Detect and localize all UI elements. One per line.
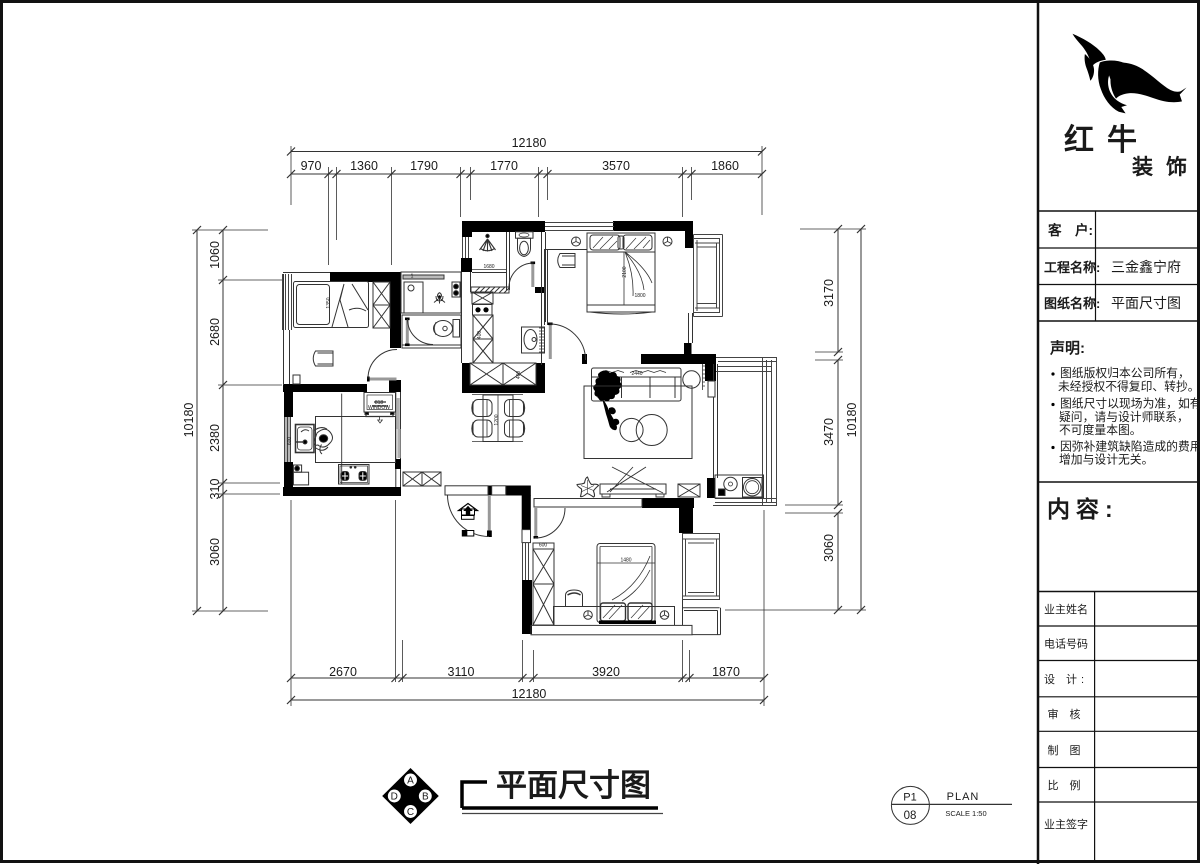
svg-text:600: 600 [287,437,293,446]
svg-text:D: D [391,792,398,803]
svg-text:600: 600 [539,543,548,549]
svg-text:310: 310 [208,479,222,500]
svg-text:1: 1 [411,274,414,280]
svg-text:比 例: 比 例 [1047,778,1084,792]
svg-text:SCALE 1:50: SCALE 1:50 [945,809,986,818]
svg-text:1870: 1870 [712,665,740,679]
svg-text:1480: 1480 [620,558,631,564]
svg-text:电话号码: 电话号码 [1044,638,1088,651]
svg-text:1860: 1860 [711,159,739,173]
svg-text:红牛: 红牛 [1064,124,1150,157]
svg-text:10180: 10180 [182,403,196,438]
svg-text:400: 400 [516,371,522,380]
svg-text:400: 400 [477,331,483,340]
svg-text:3110: 3110 [448,665,475,679]
svg-text:1060: 1060 [208,241,222,269]
svg-text:P1: P1 [903,792,916,804]
svg-text:PLAN: PLAN [947,791,980,803]
svg-text:3920: 3920 [592,665,620,679]
svg-text:3570: 3570 [602,159,630,173]
svg-text:10180: 10180 [845,403,859,438]
svg-text:平面尺寸图: 平面尺寸图 [496,768,651,803]
svg-text:图纸尺寸以现场为准，如有: 图纸尺寸以现场为准，如有 [1060,397,1200,411]
svg-text:工程名称:: 工程名称: [1044,260,1100,275]
svg-text:图纸版权归本公司所有，: 图纸版权归本公司所有， [1060,366,1190,380]
svg-text:1350: 1350 [326,297,332,308]
svg-text:3060: 3060 [822,534,836,562]
svg-text:制 图: 制 图 [1047,744,1084,757]
svg-text:疑问，请与设计师联系，: 疑问，请与设计师联系， [1059,410,1189,424]
svg-text:12180: 12180 [512,136,547,150]
svg-text:声明:: 声明: [1049,339,1085,357]
svg-text:2680: 2680 [208,318,222,346]
svg-text:审 核: 审 核 [1047,707,1084,721]
svg-text:客 户:: 客 户: [1047,222,1093,238]
svg-text:2100: 2100 [622,266,628,277]
svg-text:3060: 3060 [208,538,222,566]
svg-text:三金鑫宁府: 三金鑫宁府 [1111,259,1181,275]
svg-text:3170: 3170 [822,279,836,307]
svg-text:业主姓名: 业主姓名 [1044,602,1088,616]
svg-text:1790: 1790 [410,159,438,173]
svg-text:08: 08 [904,810,917,822]
svg-text:C: C [407,807,414,818]
svg-text:图纸名称:: 图纸名称: [1044,296,1100,311]
svg-text:2440: 2440 [631,371,642,377]
svg-text:1770: 1770 [490,159,518,173]
svg-text:因弥补建筑缺陷造成的费用: 因弥补建筑缺陷造成的费用 [1060,440,1200,454]
svg-text:A: A [407,776,414,787]
svg-text:业主签字: 业主签字 [1044,817,1088,831]
svg-text:未经授权不得复印、转抄。: 未经授权不得复印、转抄。 [1058,380,1200,394]
svg-text:1360: 1360 [350,159,378,173]
svg-text:内容:: 内容: [1047,496,1119,522]
svg-text:WINDOW: WINDOW [368,405,390,411]
svg-text:3470: 3470 [822,418,836,446]
svg-text:2380: 2380 [208,424,222,452]
svg-text:增加与设计无关。: 增加与设计无关。 [1059,453,1153,467]
svg-text:970: 970 [301,159,322,173]
svg-text:12180: 12180 [512,687,547,701]
svg-text:平面尺寸图: 平面尺寸图 [1111,295,1181,311]
svg-text:1680: 1680 [483,264,494,270]
svg-text:B: B [422,792,429,803]
svg-text:2670: 2670 [329,665,357,679]
svg-text:1800: 1800 [634,293,645,299]
svg-text:不可度量本图。: 不可度量本图。 [1059,423,1142,437]
svg-text:1200: 1200 [494,414,500,425]
svg-text:设 计:: 设 计: [1044,673,1088,686]
svg-text:装饰: 装饰 [1132,155,1200,179]
